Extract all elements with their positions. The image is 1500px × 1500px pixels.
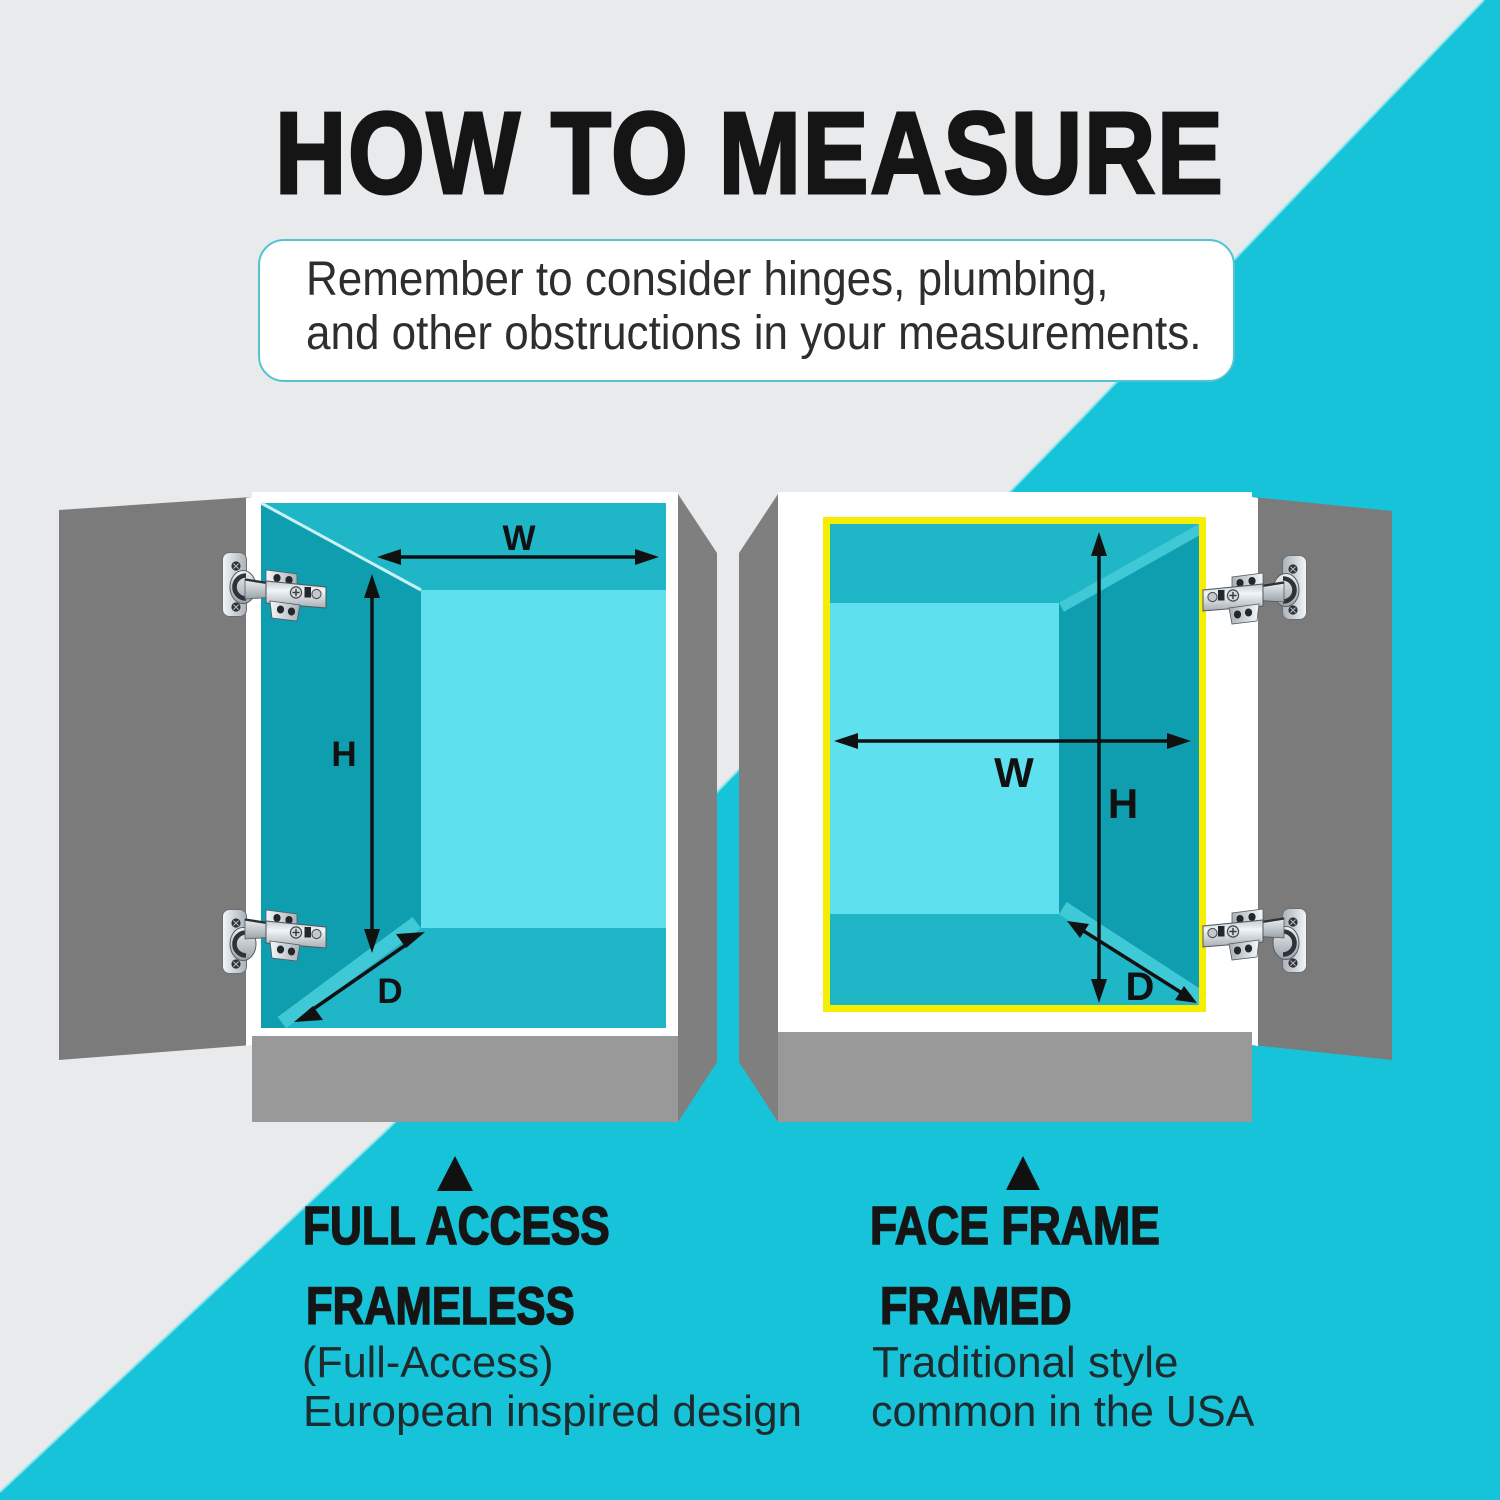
svg-text:H: H: [331, 735, 356, 774]
svg-text:H: H: [1108, 780, 1138, 827]
svg-text:W: W: [502, 519, 535, 558]
svg-text:D: D: [1126, 965, 1155, 1009]
svg-text:W: W: [994, 749, 1034, 796]
svg-text:D: D: [377, 972, 402, 1011]
